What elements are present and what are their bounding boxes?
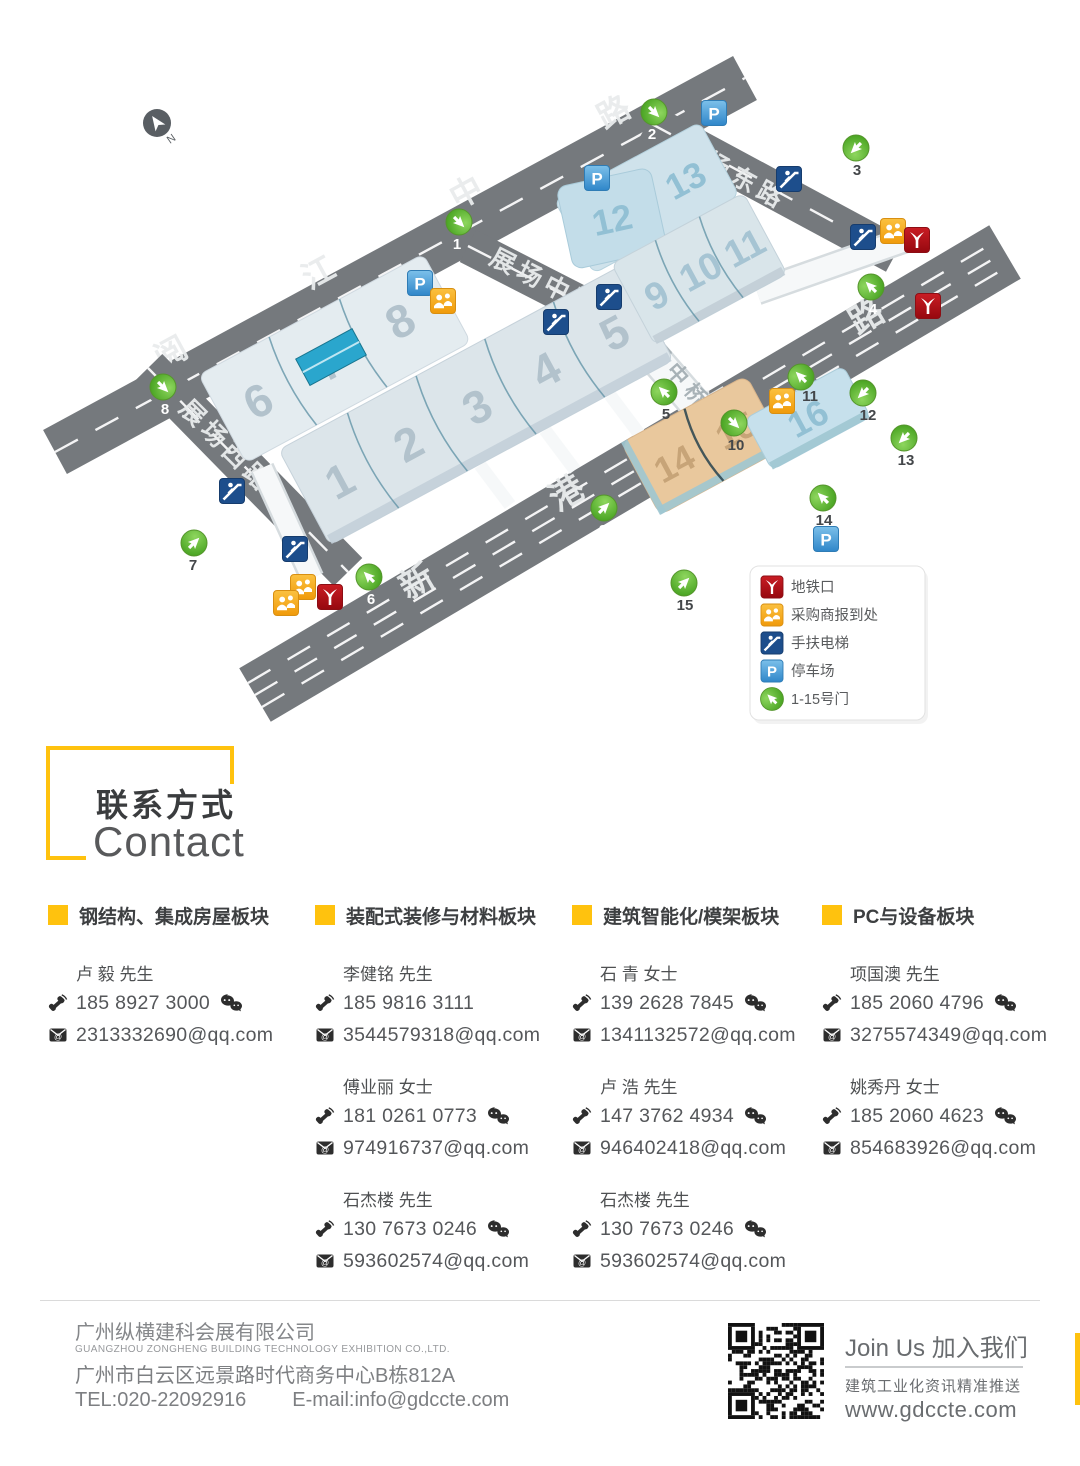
section-header: 建筑智能化/模架板块 — [572, 903, 816, 927]
buyer-registration-icon — [274, 591, 299, 616]
email-row: 593602574@qq.com — [572, 1248, 816, 1274]
contact-card: 石杰楼 先生 130 7673 0246 593602574@qq.com — [315, 1186, 565, 1299]
contact-card: 姚秀丹 女士 185 2060 4623 854683926@qq.com — [822, 1073, 1074, 1186]
contact-name: 李健铭 先生 — [315, 960, 565, 984]
section-header: PC与设备板块 — [822, 903, 1074, 927]
buyer-registration-icon — [770, 389, 795, 414]
company-tel: TEL:020-22092916 — [75, 1389, 246, 1411]
join-us-subtitle: 建筑工业化资讯精准推送 — [845, 1375, 1021, 1396]
footer-divider — [40, 1300, 1040, 1301]
gate-icon — [176, 525, 213, 562]
gate-number: 10 — [728, 437, 745, 454]
phone-icon — [315, 993, 335, 1013]
contact-line: TEL:020-22092916E-mail:info@gdccte.com — [75, 1389, 555, 1412]
contact-name: 卢 毅 先生 — [48, 960, 306, 984]
phone-row: 185 9816 3111 — [315, 990, 565, 1016]
wechat-icon — [993, 993, 1018, 1014]
gate-number: 9 — [599, 522, 607, 539]
section-pc-equipment: PC与设备板块 项国澳 先生 185 2060 4796 3275574349@… — [822, 903, 1074, 1186]
gate-number: 11 — [802, 388, 818, 405]
yellow-square-bullet — [48, 905, 68, 925]
metro-icon — [916, 294, 941, 319]
escalator-icon — [777, 167, 802, 192]
metro-icon — [318, 585, 343, 610]
gate-number: 1 — [453, 236, 461, 253]
parking-icon — [761, 660, 783, 682]
email-row: 946402418@qq.com — [572, 1135, 816, 1161]
buyer-registration-icon — [761, 604, 783, 626]
contact-card: 石 青 女士 139 2628 7845 1341132572@qq.com — [572, 960, 816, 1073]
wechat-icon — [219, 993, 244, 1014]
phone-icon — [48, 993, 68, 1013]
email-icon — [822, 1025, 842, 1045]
email-address: 1341132572@qq.com — [600, 1024, 796, 1047]
phone-number: 130 7673 0246 — [600, 1218, 734, 1241]
company-email: E-mail:info@gdccte.com — [292, 1389, 509, 1411]
escalator-icon — [220, 479, 245, 504]
email-icon — [572, 1251, 592, 1271]
wechat-icon — [486, 1106, 511, 1127]
gate-icon — [666, 565, 703, 602]
svg-text:地铁口: 地铁口 — [791, 579, 835, 596]
email-row: 3275574349@qq.com — [822, 1022, 1074, 1048]
yellow-square-bullet — [315, 905, 335, 925]
phone-row: 181 0261 0773 — [315, 1103, 565, 1129]
contact-card: 项国澳 先生 185 2060 4796 3275574349@qq.com — [822, 960, 1074, 1073]
phone-icon — [572, 1219, 592, 1239]
email-icon — [822, 1138, 842, 1158]
phone-row: 130 7673 0246 — [572, 1216, 816, 1242]
section-title: PC与设备板块 — [853, 902, 974, 929]
email-row: 1341132572@qq.com — [572, 1022, 816, 1048]
contact-name: 傅业丽 女士 — [315, 1073, 565, 1097]
gate-number: 6 — [367, 591, 375, 608]
email-icon — [315, 1138, 335, 1158]
metro-icon — [905, 228, 930, 253]
wechat-icon — [743, 1106, 768, 1127]
phone-icon — [572, 993, 592, 1013]
section-title: 建筑智能化/模架板块 — [603, 902, 779, 929]
email-row: 2313332690@qq.com — [48, 1022, 306, 1048]
escalator-icon — [283, 537, 308, 562]
yellow-accent-bar — [1075, 1333, 1080, 1405]
yellow-square-bullet — [822, 905, 842, 925]
email-address: 854683926@qq.com — [850, 1137, 1036, 1160]
gate-number: 5 — [662, 406, 670, 423]
company-name-cn: 广州纵横建科会展有限公司 — [75, 1316, 315, 1345]
gate-number: 14 — [816, 512, 833, 529]
gate-number: 7 — [189, 557, 197, 574]
qr-code — [728, 1323, 824, 1419]
section-header: 装配式装修与材料板块 — [315, 903, 565, 927]
buyer-registration-icon — [431, 289, 456, 314]
phone-row: 147 3762 4934 — [572, 1103, 816, 1129]
section-steel-structure: 钢结构、集成房屋板块 卢 毅 先生 185 8927 3000 23133326… — [48, 903, 306, 1073]
email-icon — [315, 1251, 335, 1271]
phone-icon — [822, 1106, 842, 1126]
phone-number: 147 3762 4934 — [600, 1105, 734, 1128]
metro-icon — [761, 576, 783, 598]
contact-name: 石 青 女士 — [572, 960, 816, 984]
email-address: 3544579318@qq.com — [343, 1024, 540, 1047]
section-header: 钢结构、集成房屋板块 — [48, 903, 306, 927]
contact-card: 石杰楼 先生 130 7673 0246 593602574@qq.com — [572, 1186, 816, 1299]
contact-name: 石杰楼 先生 — [572, 1186, 816, 1210]
gate-number: 12 — [860, 407, 877, 424]
section-building-intelligence: 建筑智能化/模架板块 石 青 女士 139 2628 7845 13411325… — [572, 903, 816, 1299]
wechat-icon — [486, 1219, 511, 1240]
email-row: 854683926@qq.com — [822, 1135, 1074, 1161]
contact-name: 姚秀丹 女士 — [822, 1073, 1074, 1097]
contact-name: 卢 浩 先生 — [572, 1073, 816, 1097]
yellow-square-bullet — [572, 905, 592, 925]
gate-number: 2 — [648, 126, 656, 143]
phone-icon — [822, 993, 842, 1013]
escalator-icon — [597, 285, 622, 310]
contact-card: 李健铭 先生 185 9816 3111 3544579318@qq.com — [315, 960, 565, 1073]
phone-row: 185 2060 4796 — [822, 990, 1074, 1016]
email-address: 974916737@qq.com — [343, 1137, 529, 1160]
gate-number: 4 — [869, 301, 878, 318]
phone-number: 185 2060 4623 — [850, 1105, 984, 1128]
svg-text:采购商报到处: 采购商报到处 — [791, 607, 878, 624]
wechat-icon — [743, 993, 768, 1014]
section-title: 钢结构、集成房屋板块 — [79, 902, 269, 929]
map-legend: 地铁口 采购商报到处 手扶电梯 停车场 1-15号门 — [750, 566, 928, 724]
website-url: www.gdccte.com — [845, 1397, 1017, 1423]
phone-icon — [315, 1106, 335, 1126]
gate-number: 15 — [677, 597, 694, 614]
phone-row: 139 2628 7845 — [572, 990, 816, 1016]
phone-row: 185 2060 4623 — [822, 1103, 1074, 1129]
email-address: 593602574@qq.com — [343, 1250, 529, 1273]
wechat-icon — [993, 1106, 1018, 1127]
hall-number: 12 — [588, 196, 636, 245]
contact-name: 项国澳 先生 — [822, 960, 1074, 984]
compass-label: N — [165, 132, 178, 146]
email-row: 3544579318@qq.com — [315, 1022, 565, 1048]
parking-icon — [702, 101, 727, 126]
company-name-en: GUANGZHOU ZONGHENG BUILDING TECHNOLOGY E… — [75, 1344, 450, 1355]
svg-text:手扶电梯: 手扶电梯 — [791, 635, 849, 652]
gate-icon — [805, 480, 842, 517]
phone-row: 185 8927 3000 — [48, 990, 306, 1016]
email-icon — [572, 1138, 592, 1158]
phone-number: 139 2628 7845 — [600, 992, 734, 1015]
wechat-icon — [743, 1219, 768, 1240]
buyer-registration-icon — [881, 219, 906, 244]
gate-icon — [886, 420, 923, 457]
phone-number: 185 2060 4796 — [850, 992, 984, 1015]
venue-map: P 阅江中路 — [0, 0, 1080, 745]
escalator-icon — [544, 310, 569, 335]
phone-row: 130 7673 0246 — [315, 1216, 565, 1242]
compass-icon: N — [143, 109, 178, 146]
phone-number: 185 8927 3000 — [76, 992, 210, 1015]
gate-icon — [838, 130, 875, 167]
gate-number: 8 — [161, 401, 169, 418]
email-icon — [48, 1025, 68, 1045]
contact-card: 傅业丽 女士 181 0261 0773 974916737@qq.com — [315, 1073, 565, 1186]
phone-number: 130 7673 0246 — [343, 1218, 477, 1241]
email-row: 593602574@qq.com — [315, 1248, 565, 1274]
escalator-icon — [851, 225, 876, 250]
join-us-title: Join Us 加入我们 — [845, 1328, 1028, 1363]
email-row: 974916737@qq.com — [315, 1135, 565, 1161]
contact-card: 卢 毅 先生 185 8927 3000 2313332690@qq.com — [48, 960, 306, 1073]
phone-icon — [572, 1106, 592, 1126]
join-us-divider — [845, 1366, 1023, 1368]
email-address: 593602574@qq.com — [600, 1250, 786, 1273]
escalator-icon — [761, 632, 783, 654]
page-title-en: Contact — [93, 818, 245, 866]
svg-text:1-15号门: 1-15号门 — [791, 691, 849, 708]
email-icon — [315, 1025, 335, 1045]
contact-flyer-page: P 阅江中路 — [0, 0, 1080, 1466]
email-address: 2313332690@qq.com — [76, 1024, 273, 1047]
email-address: 3275574349@qq.com — [850, 1024, 1047, 1047]
email-address: 946402418@qq.com — [600, 1137, 786, 1160]
phone-icon — [315, 1219, 335, 1239]
contact-card: 卢 浩 先生 147 3762 4934 946402418@qq.com — [572, 1073, 816, 1186]
parking-icon — [814, 527, 839, 552]
gate-number: 13 — [898, 452, 915, 469]
parking-icon — [408, 271, 433, 296]
parking-icon — [585, 166, 610, 191]
contact-name: 石杰楼 先生 — [315, 1186, 565, 1210]
svg-text:停车场: 停车场 — [791, 663, 835, 680]
gate-number: 3 — [853, 162, 861, 179]
phone-number: 185 9816 3111 — [343, 992, 474, 1015]
phone-number: 181 0261 0773 — [343, 1105, 477, 1128]
section-title: 装配式装修与材料板块 — [346, 902, 536, 929]
email-icon — [572, 1025, 592, 1045]
company-address: 广州市白云区远景路时代商务中心B栋812A — [75, 1359, 455, 1388]
section-prefab-decoration: 装配式装修与材料板块 李健铭 先生 185 9816 3111 35445793… — [315, 903, 565, 1299]
